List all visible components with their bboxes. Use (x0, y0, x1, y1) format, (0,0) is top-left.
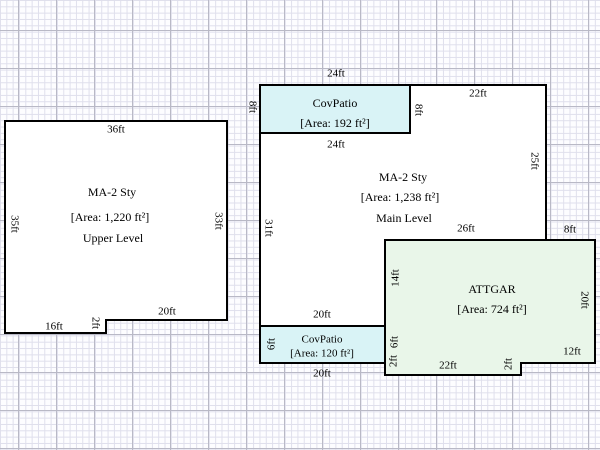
patio-bottom-title: CovPatio (302, 335, 343, 346)
patio-top-title: CovPatio (313, 97, 358, 109)
patio-bottom-area: [Area: 120 ft²] (290, 349, 354, 360)
main-dim-top-right: 22ft (469, 89, 487, 100)
upper-dim-bottom-left: 16ft (45, 322, 63, 333)
main-dim-patio-bottom: 24ft (327, 140, 345, 151)
upper-title: MA-2 Sty (88, 186, 136, 198)
patio-bottom-dim-left: 6ft (267, 338, 278, 350)
main-dim-left: 31ft (263, 219, 274, 237)
garage-dim-left: 14ft (391, 269, 402, 287)
upper-dim-left: 35ft (9, 215, 20, 233)
sketch-shapes (0, 0, 600, 450)
main-dim-bottom: 20ft (313, 310, 331, 321)
main-level-label: Main Level (376, 212, 432, 224)
sketch-canvas[interactable]: 36ft 33ft 35ft 20ft 2ft 16ft MA-2 Sty [A… (0, 0, 600, 450)
main-dim-garage-top: 26ft (457, 224, 475, 235)
garage-area: [Area: 724 ft²] (457, 303, 527, 315)
upper-dim-right: 33ft (213, 212, 224, 230)
upper-dim-top: 36ft (107, 125, 125, 136)
upper-dim-bottom-right: 20ft (158, 307, 176, 318)
upper-level-label: Upper Level (83, 232, 143, 244)
main-area: [Area: 1,238 ft²] (361, 191, 440, 203)
garage-title: ATTGAR (468, 283, 515, 295)
garage-dim-bottom: 22ft (439, 361, 457, 372)
main-title: MA-2 Sty (379, 171, 427, 183)
upper-dim-step: 2ft (90, 317, 101, 329)
garage-dim-bottom-right: 12ft (563, 347, 581, 358)
garage-dim-right: 20ft (579, 291, 590, 309)
main-dim-right: 25ft (529, 152, 540, 170)
garage-dim-left-bottom: 2ft (389, 355, 400, 367)
patio-top-area: [Area: 192 ft²] (300, 117, 370, 129)
patio-top-dim-top: 24ft (327, 69, 345, 80)
upper-area: [Area: 1,220 ft²] (71, 211, 150, 223)
upper-level-outline[interactable] (5, 121, 227, 333)
patio-top-dim-left: 8ft (247, 101, 258, 113)
patio-bottom-dim-bottom: 20ft (313, 369, 331, 380)
garage-dim-step: 2ft (504, 358, 515, 370)
main-dim-patio-right: 8ft (413, 104, 424, 116)
garage-dim-top: 8ft (564, 225, 576, 236)
garage-dim-left-mid: 6ft (390, 336, 401, 348)
